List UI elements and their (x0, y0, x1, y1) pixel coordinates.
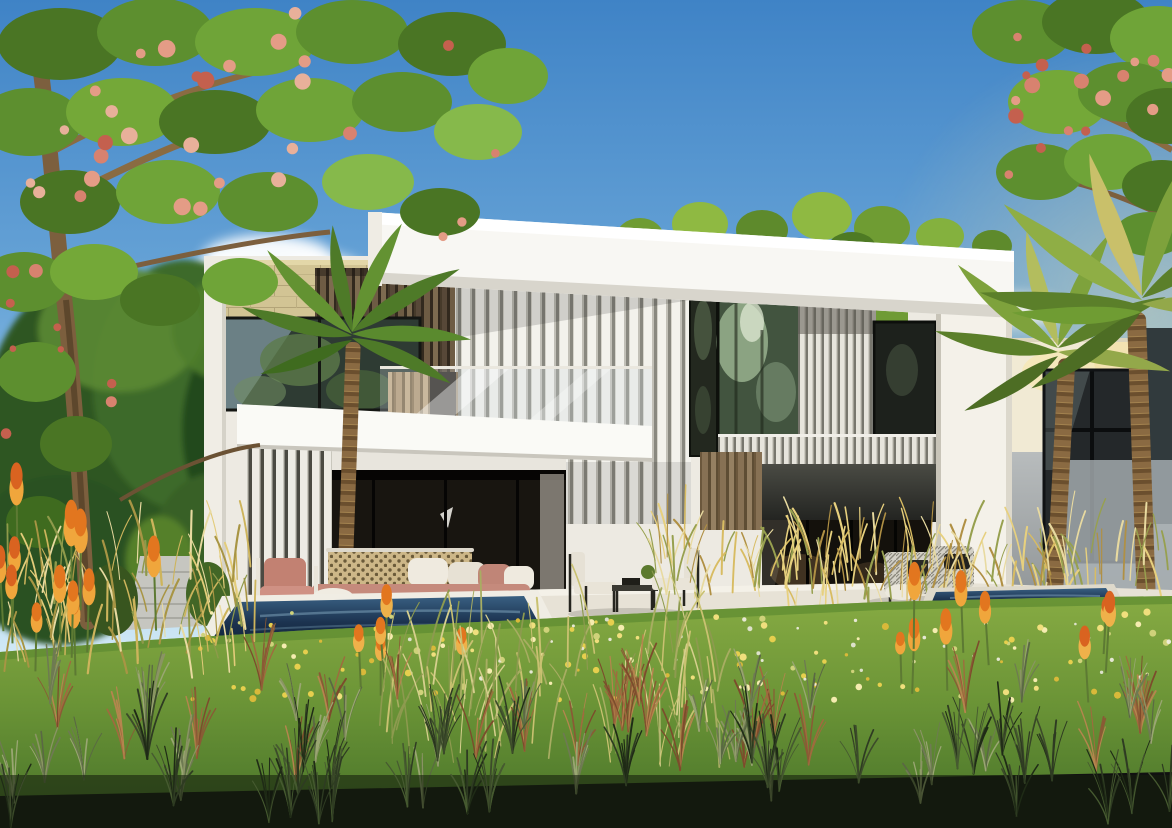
right-glazing (716, 295, 800, 437)
charcoal-canopy (762, 464, 936, 522)
villa-rendering-image (0, 0, 1172, 828)
patio-chair-left (570, 552, 585, 586)
coffee-table (612, 585, 658, 591)
sofa-pillow (408, 558, 448, 586)
curtain (540, 474, 564, 606)
rendering-canvas (0, 0, 1172, 828)
right-dark-glass (874, 322, 936, 437)
